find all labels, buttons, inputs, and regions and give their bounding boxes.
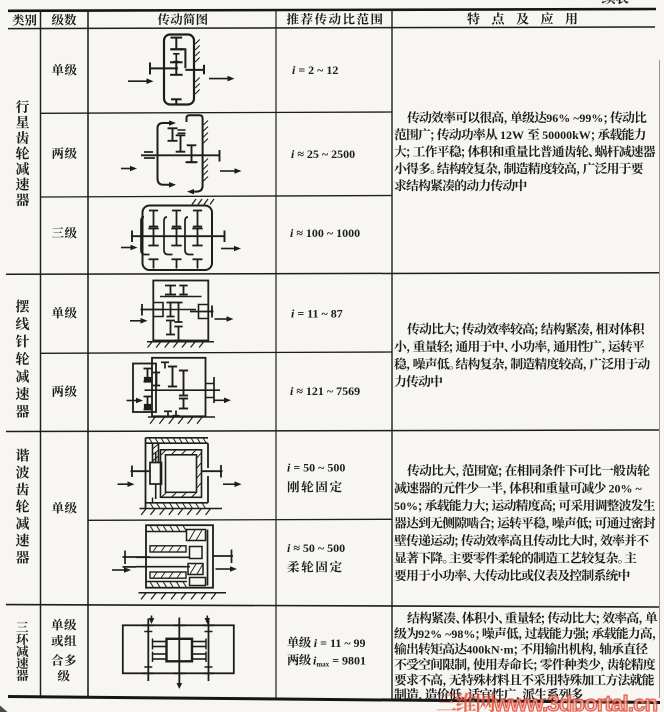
- svg-text:400kN·m: 400kN·m: [466, 642, 513, 656]
- svg-text:12W: 12W: [497, 128, 527, 142]
- svg-text:i = 11 ~ 87: i = 11 ~ 87: [291, 306, 343, 320]
- svg-text:i ≈ 121 ~ 7569: i ≈ 121 ~ 7569: [290, 384, 360, 398]
- svg-text:50000kW: 50000kW: [539, 128, 591, 142]
- svg-text:96% ~99%: 96% ~99%: [546, 111, 603, 125]
- svg-text:i = 2 ~ 12: i = 2 ~ 12: [292, 63, 338, 77]
- svg-text:20% ~: 20% ~: [606, 481, 643, 495]
- svg-text:www.3dportal.cn: www.3dportal.cn: [493, 691, 658, 712]
- svg-text:i = 50 ~ 500: i = 50 ~ 500: [287, 460, 345, 474]
- svg-text:50%: 50%: [394, 499, 418, 513]
- svg-text:92% ~98%: 92% ~98%: [418, 627, 475, 641]
- svg-text:i = 11 ~ 99: i = 11 ~ 99: [311, 636, 366, 650]
- svg-text:i ≈ 50 ~ 500: i ≈ 50 ~ 500: [287, 541, 345, 555]
- svg-text:i ≈ 100 ~ 1000: i ≈ 100 ~ 1000: [290, 226, 360, 240]
- svg-text:i ≈ 25 ~ 2500: i ≈ 25 ~ 2500: [291, 147, 355, 161]
